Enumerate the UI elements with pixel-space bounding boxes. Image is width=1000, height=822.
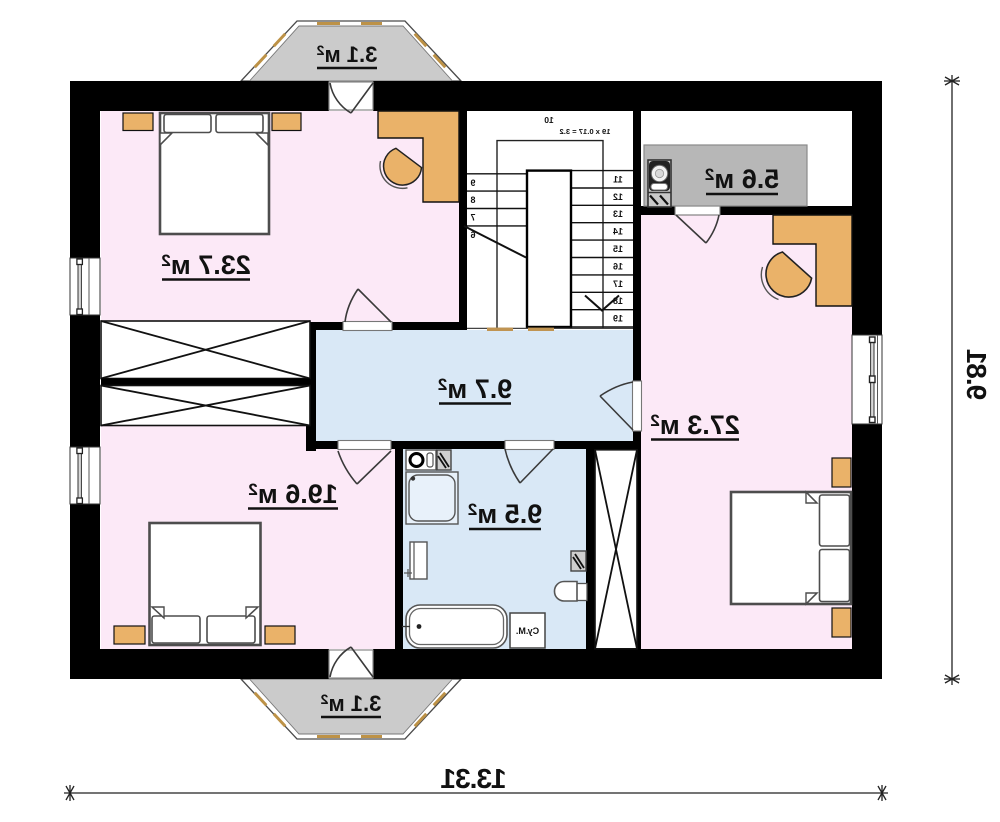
svg-text:9.7 м2: 9.7 м2	[438, 374, 512, 404]
svg-text:5.6 м2: 5.6 м2	[705, 164, 779, 194]
svg-text:9.5 м2: 9.5 м2	[468, 499, 542, 529]
svg-text:12: 12	[613, 192, 623, 202]
svg-text:13.31: 13.31	[441, 763, 506, 794]
svg-text:13: 13	[613, 209, 623, 219]
svg-text:9: 9	[470, 178, 475, 188]
svg-text:7: 7	[470, 213, 475, 223]
svg-text:14: 14	[613, 227, 623, 237]
svg-text:9.81: 9.81	[961, 349, 992, 400]
svg-text:3.1 м2: 3.1 м2	[316, 42, 377, 67]
svg-text:19: 19	[613, 314, 623, 324]
svg-text:Су.М.: Су.М.	[516, 626, 539, 636]
svg-text:16: 16	[613, 261, 623, 271]
svg-text:27.3 м2: 27.3 м2	[650, 410, 740, 440]
svg-text:11: 11	[613, 175, 623, 185]
svg-text:19.6 м2: 19.6 м2	[248, 479, 338, 509]
svg-text:17: 17	[613, 279, 623, 289]
svg-text:19 x 0.17 = 3.2: 19 x 0.17 = 3.2	[560, 127, 611, 136]
svg-text:10: 10	[544, 115, 554, 125]
svg-text:3.1 м2: 3.1 м2	[320, 691, 381, 716]
svg-text:23.7 м2: 23.7 м2	[161, 250, 251, 280]
svg-text:8: 8	[470, 195, 475, 205]
svg-text:15: 15	[613, 244, 623, 254]
